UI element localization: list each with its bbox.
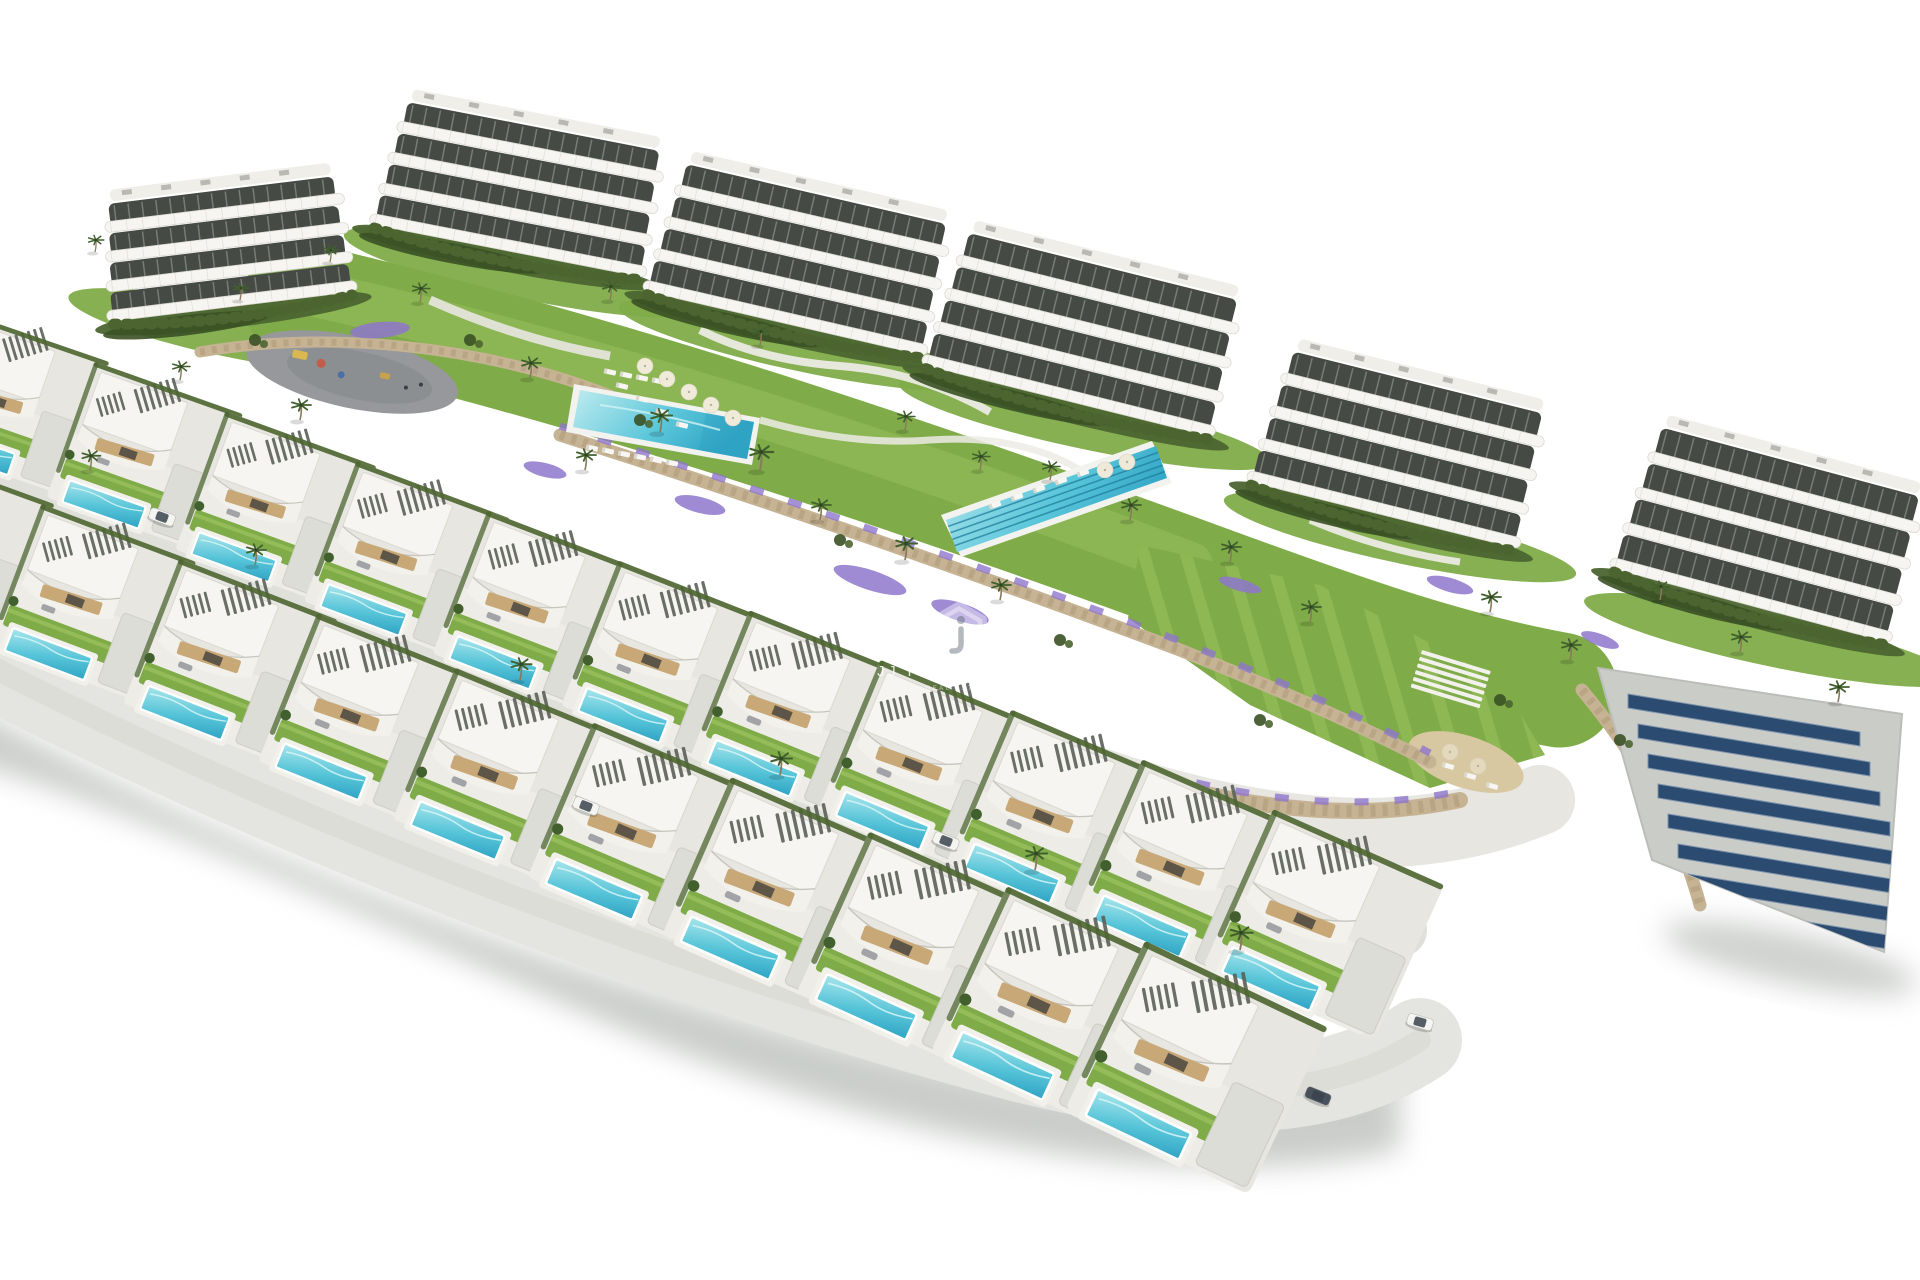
palm-tree [1480,591,1501,616]
bush [464,334,476,346]
watermark-tagline: REAL ESTATE [926,686,992,692]
bush [249,334,261,346]
bush [834,534,846,546]
watermark-title: JJ PROPERTIES [877,664,1041,680]
parasol [1442,744,1458,760]
purple-flower-bed [1425,572,1475,599]
solar-panel-field [1598,668,1920,956]
jj-hexagon-monogram-icon [936,606,983,660]
parasol [725,410,741,426]
palm-tree [87,235,104,255]
apartment-building [899,212,1268,464]
parasol [703,397,719,413]
bush [1254,714,1266,726]
development-aerial-render: JJ PROPERTIES REAL ESTATE [0,0,1920,1280]
apartment-building [1225,330,1571,575]
parasol [659,371,675,387]
parasol [681,384,697,400]
palm-tree [575,449,596,474]
bush [1054,634,1066,646]
parasol [1119,454,1135,470]
palm-tree [1828,681,1849,706]
purple-flower-bed [522,458,568,482]
palm-tree [290,399,311,424]
bush [1494,694,1506,706]
parasol [1097,462,1113,478]
bush [634,414,646,426]
purple-flower-bed [831,559,909,602]
render-canvas: JJ PROPERTIES REAL ESTATE [0,0,1920,1280]
purple-flower-bed [673,491,727,519]
watermark: JJ PROPERTIES REAL ESTATE [877,606,1041,692]
parasol [1470,758,1486,774]
parasol [637,358,653,374]
bush [1614,734,1626,746]
